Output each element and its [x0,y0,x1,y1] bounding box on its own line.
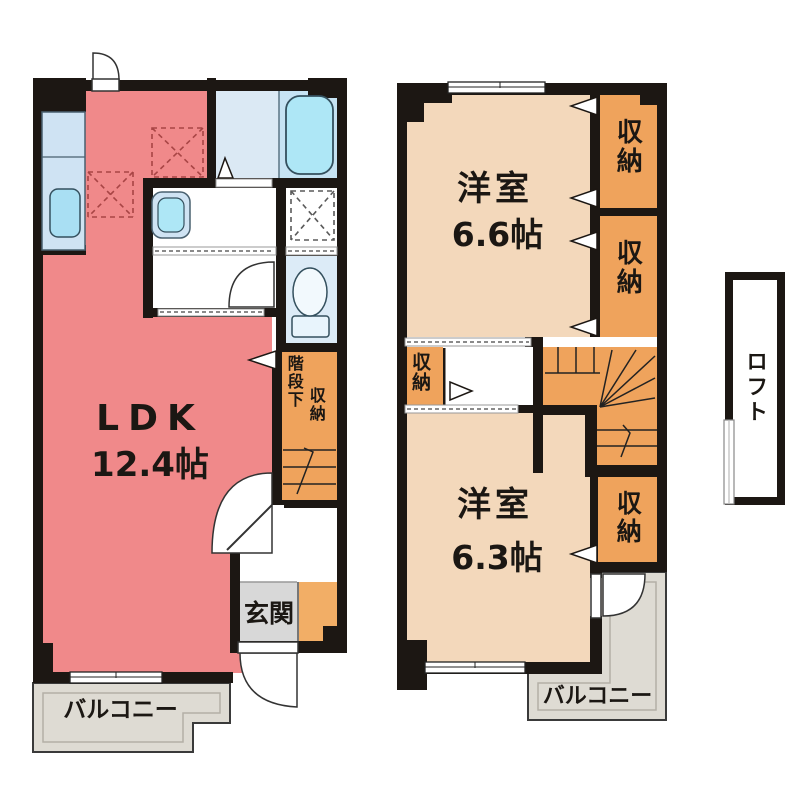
closet-bottom-label: 収納 [614,490,640,546]
stairs-upper [543,347,657,405]
hall-lower-a [282,508,337,582]
room-66-label: 洋室 [420,172,570,208]
room-63-size-label: 6.3帖 [412,541,582,576]
hallway-2f [443,347,533,405]
balcony-door-arc [603,574,645,616]
washroom [153,188,276,248]
bathtub-area [279,91,340,178]
closet-mid-label: 収納 [613,239,640,297]
room-66-size-label: 6.6帖 [415,218,580,253]
bathroom-floor [215,91,279,178]
ldk-size-label: 12.4帖 [55,448,245,484]
toilet-room [284,256,337,343]
closet-top-label: 収納 [613,118,640,176]
room-63-label: 洋室 [420,488,570,524]
floor-plan: LDK 12.4帖 玄関 バルコニー 階段下 収納 洋室 6.6帖 洋室 6.3… [0,0,800,800]
stair-storage-label-1: 階段下 [285,355,302,409]
loft-label: ロフト [743,350,766,425]
kitchen-door-arc [93,53,119,80]
stair-storage-label-2: 収納 [307,387,324,423]
balcony-2f-label: バルコニー [535,685,660,708]
genkan-label: 玄関 [238,601,300,627]
ldk-label: LDK [65,400,235,438]
genkan-side-step [298,582,337,641]
stairs-lower [597,405,657,465]
balcony-door-leaf [591,574,601,618]
balcony-1f-label: バルコニー [48,698,193,722]
closet-small-label: 収納 [409,352,429,392]
washer-nook [286,188,337,248]
hallway-1f [153,248,276,308]
